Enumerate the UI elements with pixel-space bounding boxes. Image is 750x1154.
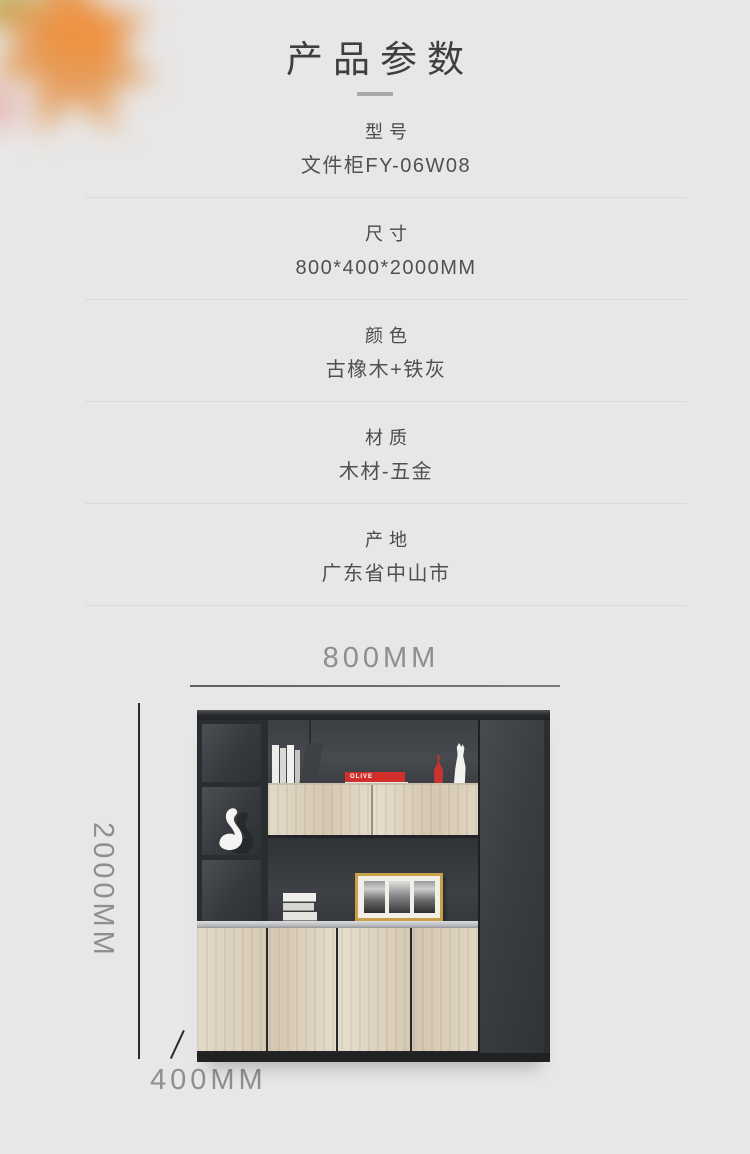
header: 产品参数 [0,0,750,96]
door-seam [266,928,268,1053]
spec-row-material: 材质 木材-五金 [85,402,687,504]
spec-value: 木材-五金 [85,461,687,483]
spec-label: 颜色 [85,326,687,346]
stacked-books [283,893,317,921]
spec-row-color: 颜色 古橡木+铁灰 [85,300,687,402]
photo-frame [355,873,443,921]
spec-label: 型号 [85,122,687,142]
dimension-height-label: 2000MM [86,822,119,959]
page-title: 产品参数 [0,36,750,84]
cabinet-plinth [197,1053,550,1062]
framed-photo-bigben [389,881,410,913]
door-seam [371,785,373,835]
spec-list: 型号 文件柜FY-06W08 尺寸 800*400*2000MM 颜色 古橡木+… [85,96,687,606]
door-seam [336,928,338,1053]
dimension-width-line [190,685,560,687]
framed-photo-eiffel [364,881,385,913]
hanging-cabinet-doors [268,783,478,838]
spec-label: 产地 [85,530,687,550]
aluminum-strip [197,921,478,928]
upright-books [272,743,326,783]
spec-value: 古橡木+铁灰 [85,359,687,381]
cabinet-right-edge [544,720,550,1053]
framed-photo-tower [414,881,435,913]
bottom-doors [197,928,478,1053]
dimension-width-label: 800MM [197,642,565,675]
middle-open-shelf [268,838,478,921]
spec-label: 材质 [85,428,687,448]
door-seam [410,928,412,1053]
upper-open-shelf: OLIVE ◎ HOME [268,720,478,783]
shelf-cell [202,724,261,782]
side-cabinet-door [478,720,544,1053]
swan-figurine [210,800,256,855]
shelf-cell-swan [202,787,261,855]
spec-value: 广东省中山市 [85,563,687,585]
title-underline [357,92,393,96]
spec-value: 文件柜FY-06W08 [85,155,687,177]
red-book-spine: OLIVE [345,772,405,782]
spec-row-size: 尺寸 800*400*2000MM [85,198,687,300]
spec-row-model: 型号 文件柜FY-06W08 [85,96,687,198]
dimension-height-line [138,703,140,1059]
dimension-depth-label: 400MM [150,1064,267,1097]
cabinet-top-edge [197,710,550,720]
dimension-depth-tick [170,1030,185,1059]
shelf-cell [202,860,261,921]
spec-label: 尺寸 [85,224,687,244]
cabinet-product-image: OLIVE ◎ HOME [197,710,550,1062]
spec-value: 800*400*2000MM [85,257,687,279]
spec-row-origin: 产地 广东省中山市 [85,504,687,606]
